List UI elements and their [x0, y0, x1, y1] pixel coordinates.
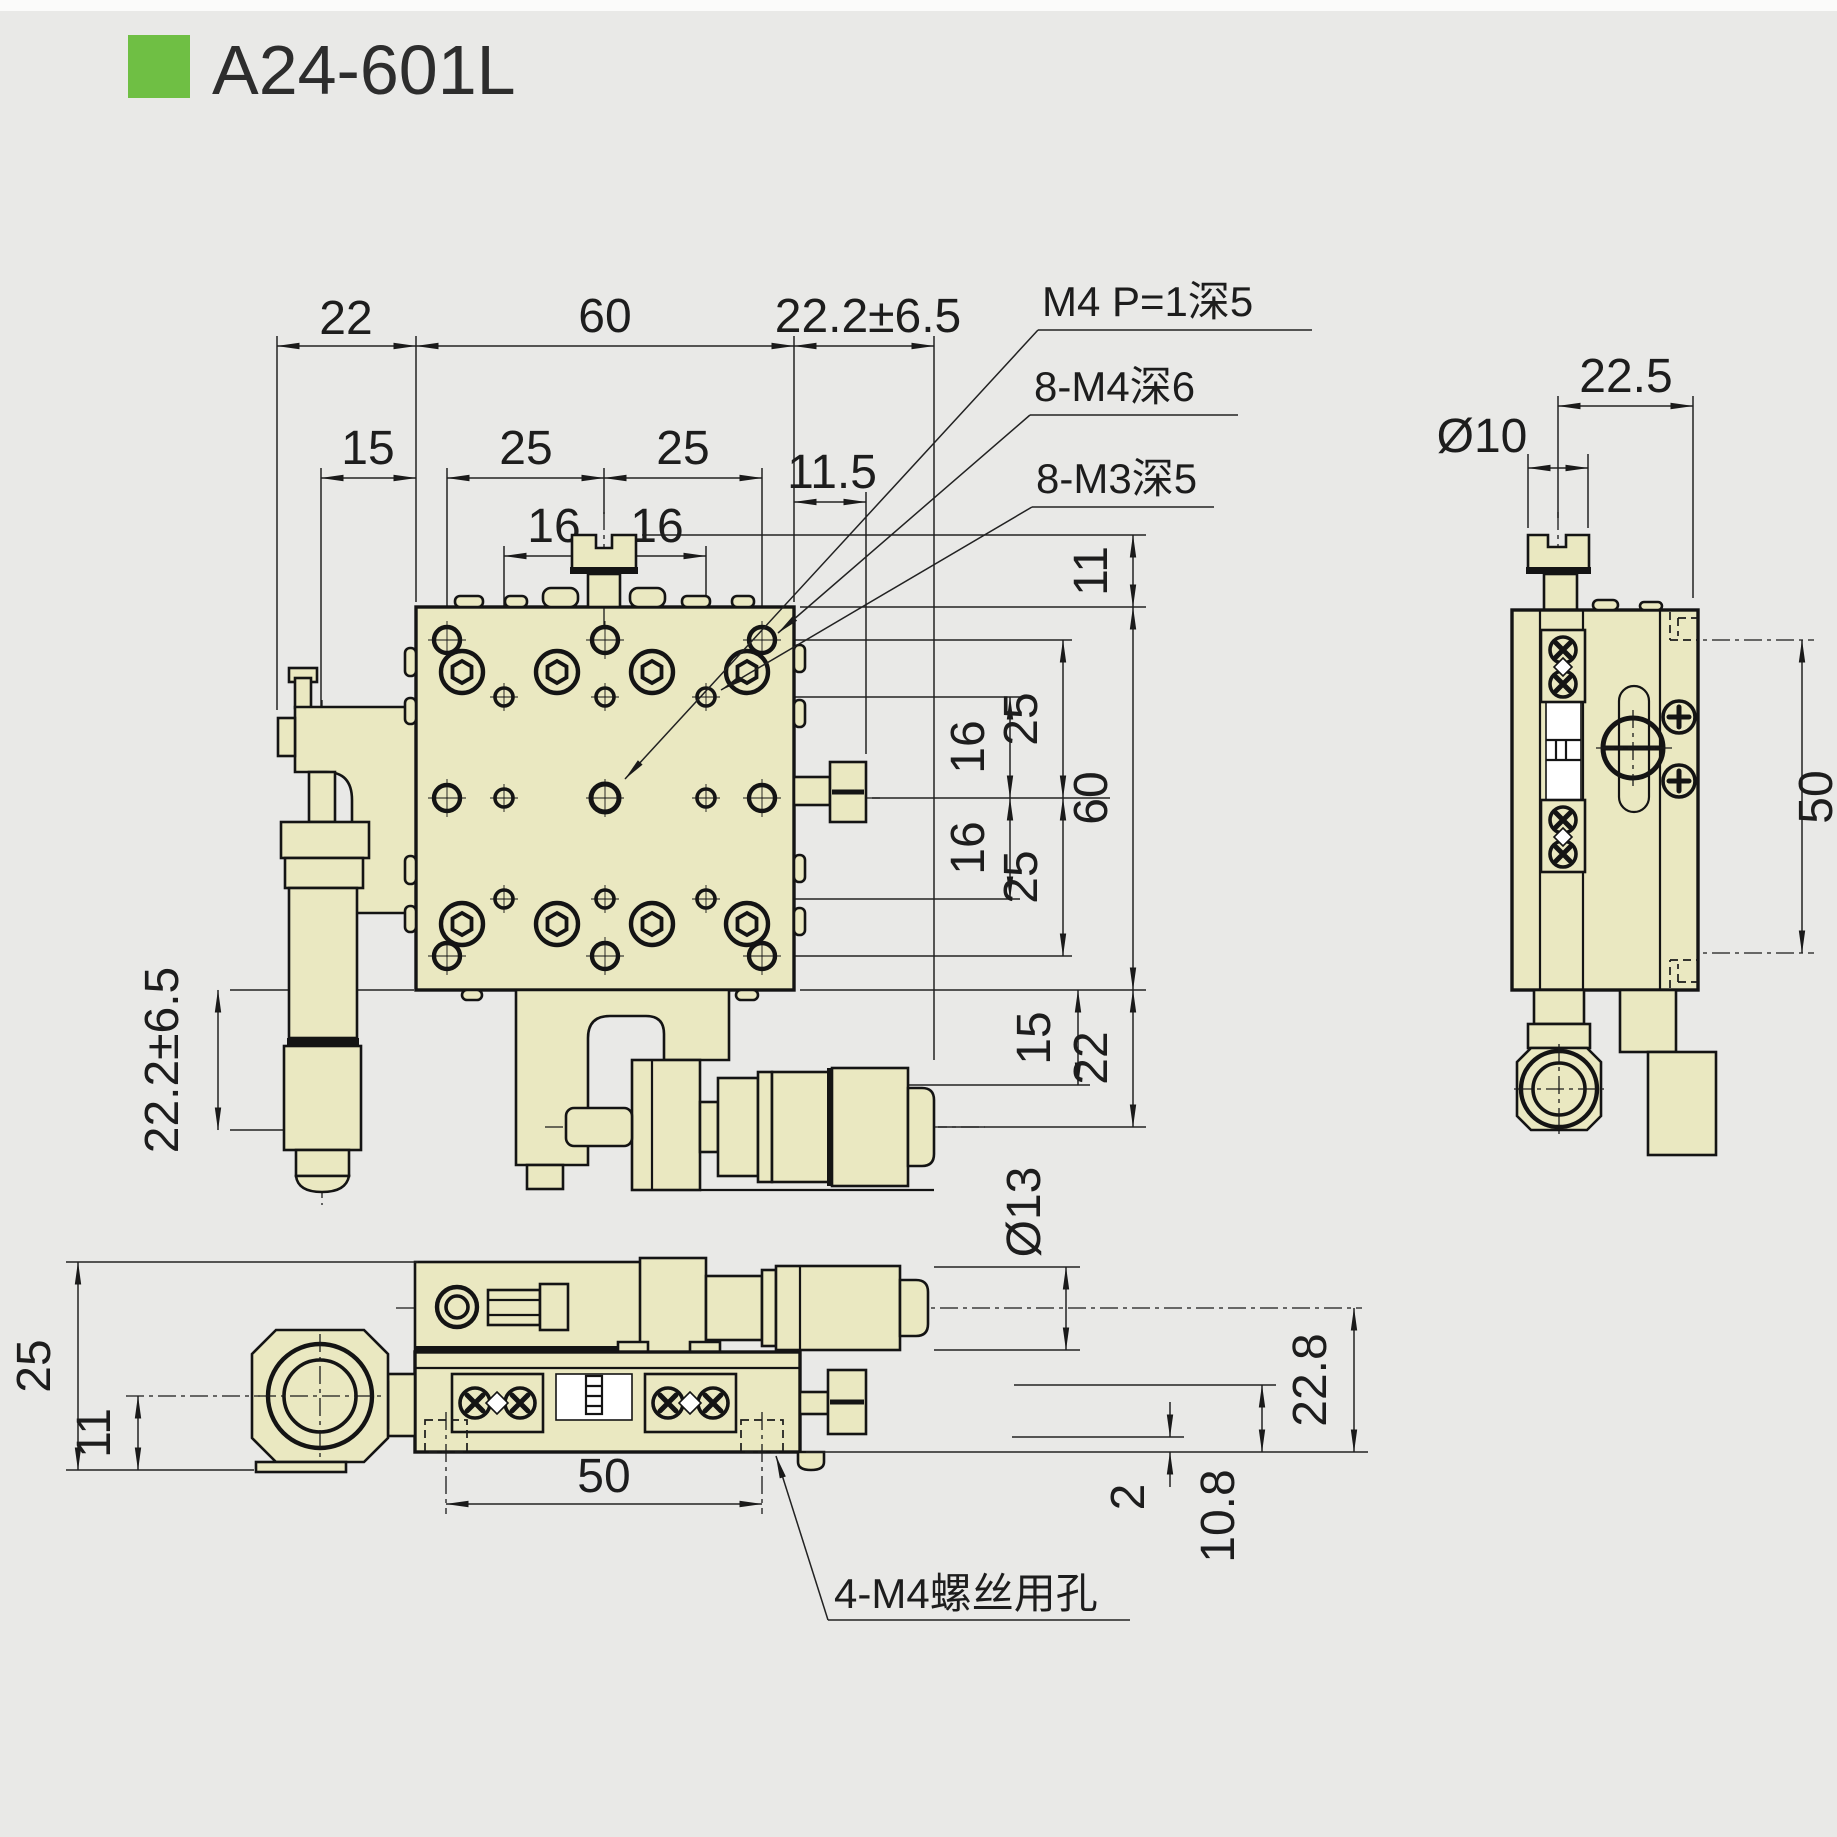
dim-dia10: Ø10	[1437, 410, 1528, 463]
pad	[1640, 602, 1662, 610]
dim-travel: 22.2±6.5	[775, 290, 962, 343]
y-axis-micrometer	[278, 668, 416, 1205]
knob-stem	[1544, 574, 1577, 610]
spindle	[566, 1108, 632, 1146]
dim-16-right-top: 16	[942, 720, 995, 773]
ratchet-knob	[832, 1068, 908, 1186]
dim-50-side: 50	[1790, 770, 1837, 823]
micrometer-body	[706, 1276, 762, 1340]
lock-screw-stem	[295, 678, 311, 708]
thimble	[284, 1046, 361, 1150]
base-clamp-right	[645, 1374, 736, 1432]
step-ring	[762, 1270, 776, 1346]
stage-top-plate	[405, 512, 880, 1000]
micrometer-down	[1648, 1052, 1716, 1155]
dim-22-5: 22.5	[1579, 350, 1672, 403]
bottom-left-knob	[252, 1330, 415, 1472]
dim-11-right: 11	[1065, 546, 1118, 596]
top-adjust-knob	[572, 535, 636, 570]
pad	[405, 648, 416, 676]
title-block: A24-601L	[128, 31, 516, 109]
dim-15: 15	[341, 422, 394, 475]
dim-10-8: 10.8	[1192, 1469, 1245, 1562]
pad	[736, 990, 758, 1000]
dim-25-right-top: 25	[995, 692, 1048, 745]
knob-tip	[296, 1150, 349, 1176]
dim-11-5: 11.5	[787, 446, 877, 499]
callout-m4: 8-M4深6	[1034, 363, 1195, 410]
dim-60-right: 60	[1065, 771, 1118, 824]
clamp-ring	[285, 858, 363, 888]
pad	[405, 906, 416, 932]
micrometer-clamp	[632, 1060, 700, 1190]
bottom-callout: 4-M4螺丝用孔	[776, 1456, 1130, 1620]
pad	[543, 588, 578, 607]
screw-stem	[794, 777, 830, 805]
dim-22-right: 22	[1065, 1031, 1118, 1084]
callout-leader	[776, 1456, 828, 1620]
dim-22-8: 22.8	[1284, 1333, 1337, 1426]
pad	[1593, 600, 1618, 610]
dim-travel-left: 22.2±6.5	[136, 967, 189, 1154]
block	[1620, 990, 1676, 1052]
barrel	[289, 888, 357, 1038]
dim-25a: 25	[499, 422, 552, 475]
knob-stem	[588, 574, 620, 607]
callout-leader	[625, 330, 1038, 779]
pad	[794, 645, 805, 672]
clamp-ring	[281, 822, 369, 858]
pad	[462, 990, 482, 1000]
dim-22: 22	[319, 292, 372, 345]
collar	[700, 1102, 718, 1152]
bottom-view: 25 11 50 Ø13 22.8 10.8 2 4-M4螺丝用孔	[8, 1167, 1368, 1620]
end-cap	[908, 1088, 934, 1166]
side-body	[1512, 512, 1716, 1155]
side-view: 22.5 Ø10 50	[1437, 350, 1837, 1155]
housing-foot	[256, 1462, 346, 1472]
product-code: A24-601L	[212, 31, 516, 109]
round-tab	[798, 1452, 824, 1470]
pad	[682, 596, 710, 607]
pad	[505, 596, 527, 607]
thimble	[772, 1072, 830, 1182]
drawing-page: A24-601L 22 60 22.2±6.5	[0, 0, 1837, 1837]
dim-25-right-bottom: 25	[995, 850, 1048, 903]
dim-2: 2	[1102, 1484, 1155, 1511]
pad	[455, 596, 483, 607]
screw-stem	[800, 1392, 828, 1414]
step-ring	[758, 1072, 772, 1182]
dim-50-bottom: 50	[577, 1450, 630, 1503]
rail-clamp-top	[1541, 630, 1585, 702]
dim-60: 60	[578, 290, 631, 343]
rail-groove	[1546, 702, 1581, 800]
thimble	[776, 1266, 900, 1350]
x-lock-screw	[794, 762, 880, 822]
dim-dia13: Ø13	[998, 1167, 1051, 1258]
bracket-step	[278, 718, 295, 756]
dim-16b: 16	[630, 500, 683, 553]
knob-dome	[296, 1176, 349, 1192]
connector	[388, 1374, 415, 1436]
base-clamp-left	[452, 1374, 543, 1432]
dim-11-bottom: 11	[68, 1408, 121, 1458]
end-cap	[900, 1280, 928, 1336]
side-knob-cap	[1528, 535, 1589, 570]
dim-16-right-bottom: 16	[942, 821, 995, 874]
title-green-swatch	[128, 35, 190, 98]
pad	[732, 596, 754, 607]
pad	[794, 855, 805, 882]
dim-25-bottom: 25	[8, 1339, 61, 1392]
callout-center-hole: M4 P=1深5	[1042, 278, 1253, 325]
rail-clamp-bottom	[1541, 800, 1585, 872]
hex-stem	[488, 1290, 540, 1325]
pad	[405, 856, 416, 884]
pad	[794, 908, 805, 935]
block	[540, 1284, 568, 1330]
pad	[405, 698, 416, 724]
block	[1534, 990, 1584, 1024]
bottom-base-strip	[415, 1352, 866, 1514]
x-axis-assembly	[516, 990, 985, 1190]
spindle	[309, 772, 335, 822]
micrometer-body	[718, 1078, 758, 1176]
callout-m3: 8-M3深5	[1036, 455, 1197, 502]
front-view: 22 60 22.2±6.5 15 25 25 11.5 16 16 16 16…	[136, 278, 1312, 1205]
dim-25b: 25	[656, 422, 709, 475]
dim-15-right: 15	[1008, 1011, 1061, 1064]
technical-drawing: A24-601L 22 60 22.2±6.5	[0, 0, 1837, 1837]
pad	[630, 588, 665, 607]
callout-4m4: 4-M4螺丝用孔	[834, 1570, 1098, 1617]
bracket-foot	[527, 1165, 563, 1189]
pad	[794, 700, 805, 727]
